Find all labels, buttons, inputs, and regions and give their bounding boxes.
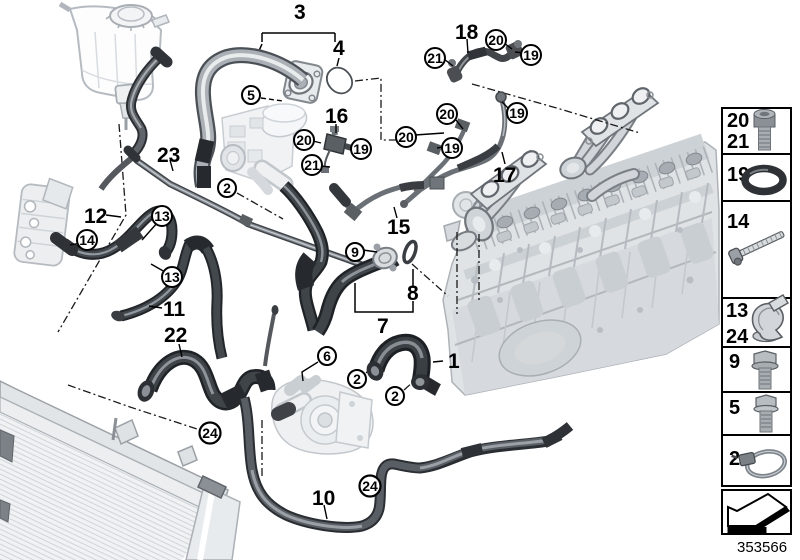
svg-text:9: 9	[729, 351, 740, 373]
svg-text:3: 3	[294, 1, 306, 24]
svg-text:5: 5	[729, 397, 740, 419]
svg-text:24: 24	[362, 478, 378, 494]
svg-text:18: 18	[455, 21, 479, 44]
svg-text:14: 14	[79, 232, 95, 248]
svg-text:13: 13	[164, 269, 180, 285]
svg-text:2: 2	[729, 448, 740, 470]
svg-text:353566: 353566	[737, 539, 787, 556]
svg-text:20: 20	[439, 106, 455, 122]
svg-text:12: 12	[84, 205, 107, 228]
svg-text:15: 15	[387, 216, 411, 239]
svg-text:21: 21	[427, 50, 443, 66]
svg-text:9: 9	[351, 244, 359, 260]
svg-text:16: 16	[325, 105, 348, 128]
svg-text:22: 22	[164, 324, 187, 347]
svg-text:8: 8	[407, 282, 419, 305]
svg-text:7: 7	[377, 315, 389, 338]
svg-text:19: 19	[523, 47, 539, 63]
svg-text:1: 1	[448, 350, 460, 373]
svg-text:11: 11	[163, 298, 186, 321]
svg-text:19: 19	[353, 141, 369, 157]
svg-text:10: 10	[312, 487, 335, 510]
svg-text:2: 2	[223, 180, 231, 196]
svg-text:24: 24	[726, 326, 749, 348]
svg-text:6: 6	[323, 348, 331, 364]
svg-text:4: 4	[333, 37, 345, 60]
svg-text:20: 20	[488, 32, 504, 48]
svg-text:23: 23	[157, 144, 180, 167]
svg-text:20: 20	[727, 110, 749, 132]
svg-text:13: 13	[154, 208, 170, 224]
svg-text:20: 20	[398, 129, 414, 145]
svg-text:17: 17	[493, 164, 516, 187]
svg-text:19: 19	[509, 105, 525, 121]
svg-text:21: 21	[727, 131, 749, 153]
svg-text:20: 20	[296, 132, 312, 148]
svg-text:2: 2	[391, 388, 399, 404]
svg-text:21: 21	[304, 157, 320, 173]
svg-text:2: 2	[353, 371, 361, 387]
svg-text:24: 24	[202, 425, 218, 441]
svg-text:5: 5	[247, 87, 255, 103]
svg-text:13: 13	[726, 300, 748, 322]
svg-text:14: 14	[727, 211, 750, 233]
svg-text:19: 19	[444, 140, 460, 156]
